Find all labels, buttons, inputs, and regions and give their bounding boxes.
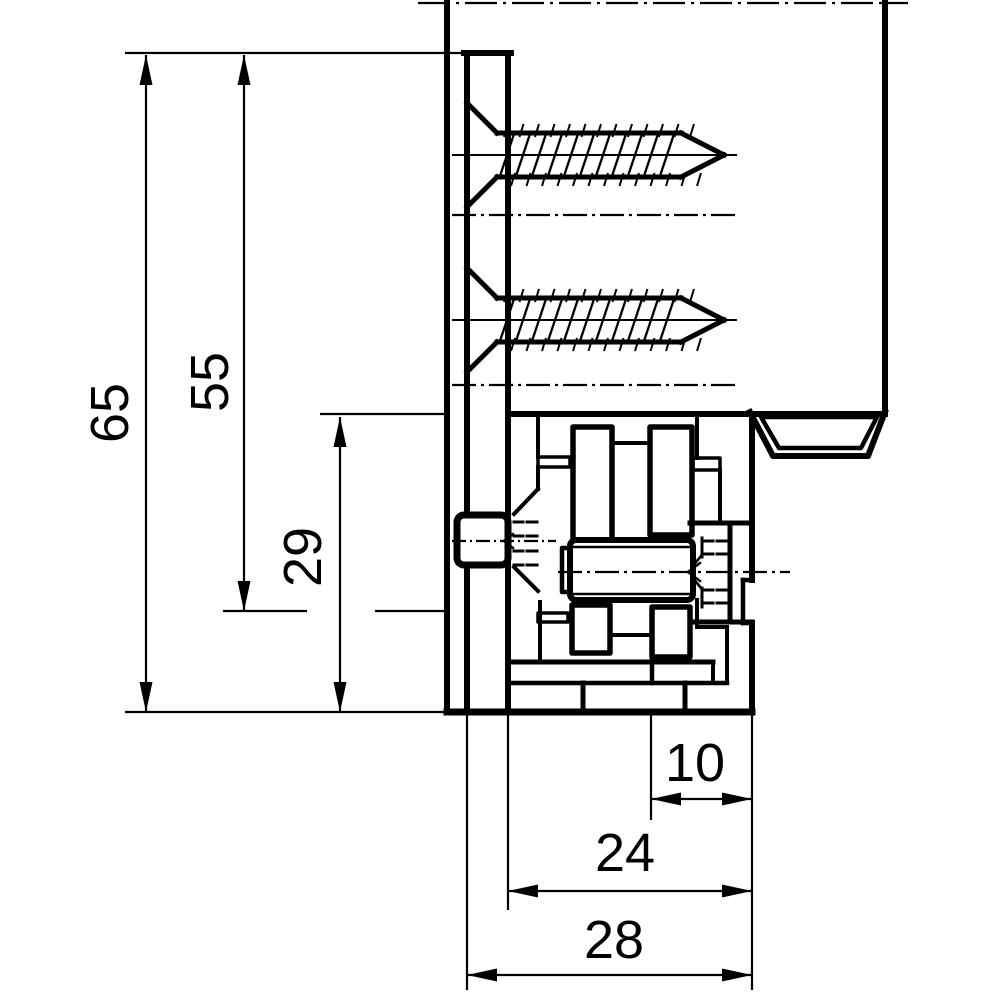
dimension-28: 28 [467, 910, 752, 982]
dimension-29: 29 [273, 417, 347, 712]
dimension-24: 24 [508, 823, 752, 898]
dimension-label-65: 65 [80, 383, 140, 443]
technical-drawing-page: 655529102428 [0, 0, 1000, 1000]
dimension-10: 10 [651, 733, 752, 806]
dimension-extension-lines [125, 53, 752, 990]
dimension-label-24: 24 [595, 823, 655, 883]
drawing-svg: 655529102428 [0, 0, 1000, 1000]
dimension-label-29: 29 [273, 527, 333, 587]
rail-clip [750, 412, 885, 456]
dimension-65: 65 [80, 55, 153, 712]
dimension-label-55: 55 [180, 352, 240, 412]
dimension-label-28: 28 [584, 910, 644, 970]
barrel [562, 540, 693, 600]
dimension-label-10: 10 [665, 733, 725, 793]
countersunk-screw-2 [452, 268, 737, 372]
dimension-55: 55 [180, 55, 251, 611]
mounting-plate [464, 53, 511, 712]
countersunk-screw-1 [452, 103, 737, 207]
centerlines [418, 3, 908, 572]
